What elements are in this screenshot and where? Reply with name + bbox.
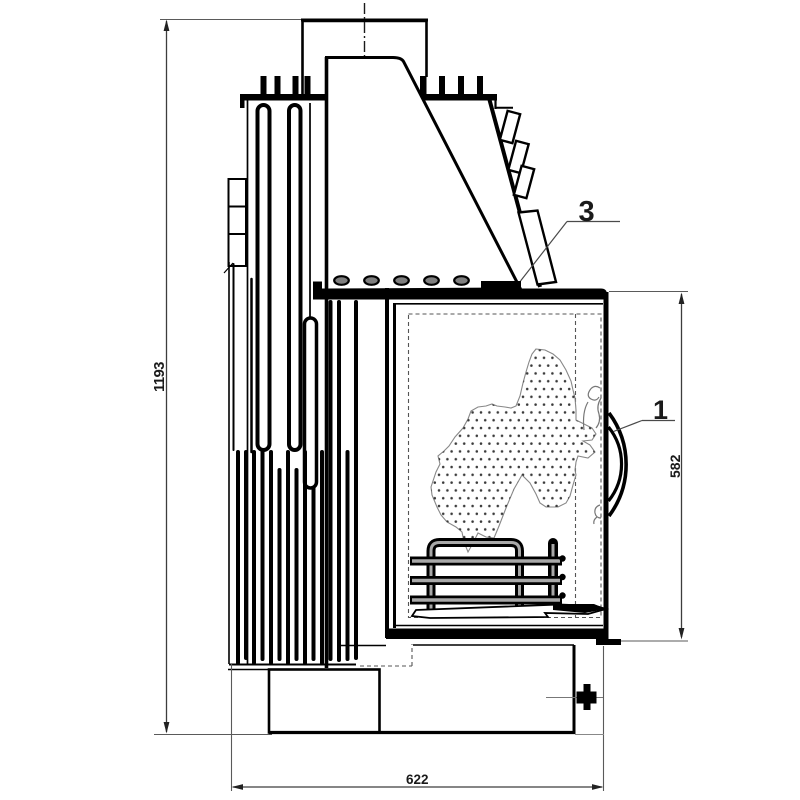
svg-text:582: 582: [667, 454, 683, 478]
svg-text:622: 622: [406, 772, 429, 787]
svg-text:1: 1: [653, 395, 668, 425]
svg-text:1193: 1193: [151, 362, 168, 392]
svg-text:3: 3: [579, 196, 595, 228]
